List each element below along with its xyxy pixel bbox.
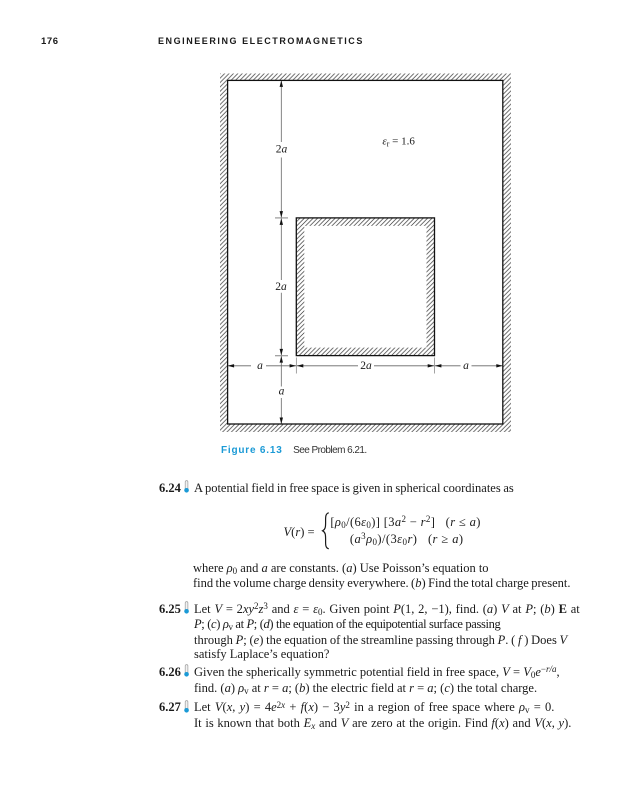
svg-text:εr = 1.6: εr = 1.6 (382, 136, 415, 149)
svg-text:a: a (463, 360, 469, 372)
svg-text:a: a (257, 360, 263, 372)
svg-text:2a: 2a (275, 281, 287, 293)
svg-text:a: a (279, 386, 285, 398)
svg-text:2a: 2a (360, 360, 372, 372)
svg-text:2a: 2a (276, 143, 288, 155)
